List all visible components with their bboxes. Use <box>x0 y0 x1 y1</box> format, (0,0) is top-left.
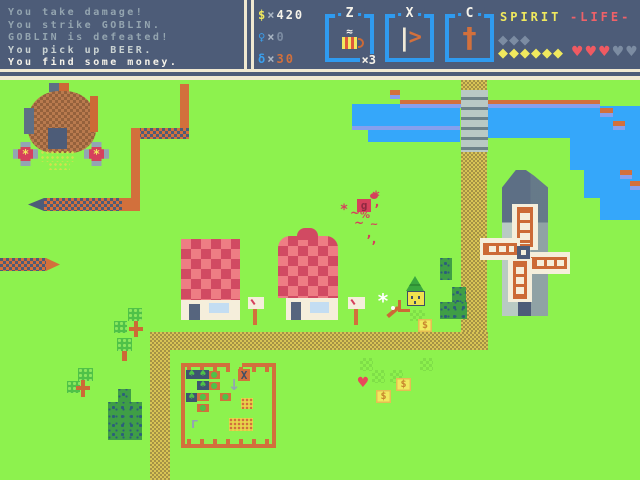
windmill-hub <box>517 246 530 259</box>
windmill-blade-left <box>480 238 520 260</box>
bush <box>440 302 467 319</box>
tree-trunk <box>129 321 143 337</box>
house2-window <box>310 302 329 313</box>
house2-roof-gable <box>297 228 318 240</box>
dirt-path-left-vertical <box>131 128 140 200</box>
signpost-post <box>354 309 358 325</box>
yellow-pip-icon: ◆ <box>498 47 508 60</box>
sand-road-west <box>170 332 488 350</box>
red-pip-icon: ♥ <box>598 45 611 59</box>
house1-roof <box>181 239 240 300</box>
farm-tile-tree: ♠ <box>197 381 208 390</box>
money-icon: $ <box>258 8 267 22</box>
signpost-board <box>348 297 365 309</box>
hut-skirt <box>40 150 76 162</box>
log-message: You find some money. <box>8 57 240 73</box>
beer-mug-icon <box>342 37 357 49</box>
dirt-path-southwest <box>0 258 46 271</box>
stat-value: 0 <box>276 30 285 44</box>
tree <box>128 308 142 321</box>
dot-icon <box>418 13 421 16</box>
river-east-mid <box>570 138 640 170</box>
sparkle: * <box>374 292 392 310</box>
money-pickup: $ <box>376 390 391 403</box>
slot-z-button[interactable]: Z≈×3 <box>325 14 374 62</box>
log-message: You pick up BEER. <box>8 45 240 58</box>
log-message: You take damage! <box>8 7 240 20</box>
dirt-path-southwest-tip <box>46 258 60 271</box>
farm-crop-grid: ♠♠●♠●♠●●● <box>186 369 231 414</box>
key-icon: ♀ <box>258 30 267 44</box>
dirt-path-west-tip <box>28 198 44 211</box>
farm-fence-gate-gap <box>230 363 242 367</box>
windmill-blade-right <box>528 252 570 274</box>
river-pool-west-lower <box>368 130 460 142</box>
bridge <box>461 90 488 152</box>
hay-patch <box>241 398 253 409</box>
hud-divider <box>244 0 254 80</box>
stat-value: 420 <box>276 8 304 22</box>
house1-window <box>209 303 229 313</box>
farm-tile-veg: ● <box>197 393 208 401</box>
yellow-pip-icon: ◆ <box>542 47 552 60</box>
river-bank <box>630 186 640 190</box>
signpost-board <box>248 297 264 309</box>
dim-pip-icon: ♥ <box>625 45 638 59</box>
yellow-pip-icon: ◆ <box>509 47 519 60</box>
hay-patch <box>229 418 253 431</box>
tree-trunk <box>122 351 127 361</box>
house2-roof <box>278 236 338 298</box>
corner-mark: Γ <box>190 418 199 430</box>
river-east-exit <box>600 198 640 220</box>
yellow-pip-icon: ◆ <box>520 47 530 60</box>
life-label: -LIFE- <box>570 10 631 24</box>
log-message: You strike GOBLIN. <box>8 20 240 33</box>
dim-pip-icon: ♥ <box>612 45 625 59</box>
hud-panel: You take damage!You strike GOBLIN.GOBLIN… <box>0 0 640 80</box>
farm-tile-veg: ● <box>209 371 220 379</box>
stat-value: 30 <box>276 52 294 66</box>
red-pip-icon: ♥ <box>571 45 584 59</box>
blood-splat: , <box>374 198 380 206</box>
windmill-blade-down <box>508 258 532 302</box>
grass-patch <box>372 370 385 383</box>
house2-door <box>291 302 301 320</box>
bush <box>440 258 452 280</box>
farm-tile-veg: ● <box>197 404 208 412</box>
bomb-icon: δ <box>258 52 267 66</box>
message-log: You take damage!You strike GOBLIN.GOBLIN… <box>8 7 240 73</box>
foam-icon: ≈ <box>346 28 353 35</box>
tree <box>114 321 127 333</box>
blood-splat: ~ <box>354 218 364 228</box>
gnome-npc-hat <box>406 276 424 291</box>
dot-icon <box>458 13 461 16</box>
dot-icon <box>338 13 341 16</box>
arrow-marker: ↓ <box>228 377 240 393</box>
hut-side-right <box>90 96 98 132</box>
river-bank <box>400 104 600 108</box>
dagger-icon: † <box>449 18 490 58</box>
river-bank <box>613 126 625 130</box>
dirt-path-upper-horizontal <box>138 128 189 139</box>
bush <box>108 402 142 440</box>
life-meter-row: ♥♥♥♥♥ <box>571 45 638 59</box>
hut-skirt <box>48 162 70 170</box>
red-pip-icon: ♥ <box>585 45 598 59</box>
beer-mug-icon: ≈ <box>329 18 370 58</box>
tree-trunk <box>76 380 90 397</box>
blood-splat: , <box>371 235 377 243</box>
grass-patch <box>420 358 433 371</box>
farm-tile-veg: ● <box>209 382 220 390</box>
river-bank <box>352 126 460 130</box>
hut-door <box>48 128 67 149</box>
money-pickup: $ <box>418 319 432 332</box>
dot-icon <box>358 13 361 16</box>
farm-tile-tree: ♠ <box>186 393 197 402</box>
log-message: GOBLIN is defeated! <box>8 32 240 45</box>
spirit-filled-row: ◆◆◆◆◆◆ <box>498 47 563 60</box>
stat-row-money: $×420 <box>258 9 304 21</box>
dirt-path-top-vertical <box>180 84 189 130</box>
dirt-path-west-end <box>122 198 140 211</box>
bush <box>452 287 466 302</box>
dot-icon <box>478 13 481 16</box>
stat-row-bomb: δ×30 <box>258 53 295 65</box>
signpost-post <box>253 309 257 325</box>
house1-door <box>189 304 200 320</box>
farm-tile-tree: ♠ <box>197 370 208 379</box>
tree <box>117 338 132 351</box>
slot-x-button[interactable]: X|> <box>385 14 434 62</box>
game-map-viewport[interactable]: **g**~%~~,,,*$$$♥♠♠●♠●♠●●●X↓Γ <box>0 80 640 480</box>
yellow-pip-icon: ◆ <box>531 47 541 60</box>
sparkle-dot <box>391 306 395 310</box>
bush <box>118 389 131 402</box>
blood-splat: * <box>338 204 350 216</box>
dirt-path-west <box>44 198 122 211</box>
hut-side-left <box>24 108 34 134</box>
money-pickup: $ <box>396 378 411 391</box>
slash-icon: > <box>409 27 422 49</box>
corner-marker <box>398 300 410 312</box>
slot-c-button[interactable]: C† <box>445 14 494 62</box>
sand-road-south-leg <box>150 332 170 480</box>
river-bank <box>620 175 632 179</box>
spirit-label: SPIRIT <box>500 10 561 24</box>
dot-icon <box>398 13 401 16</box>
heart-pickup: ♥ <box>356 376 370 390</box>
stat-row-key: ♀×0 <box>258 31 286 43</box>
farm-tile-veg: ● <box>220 393 231 401</box>
yellow-pip-icon: ◆ <box>553 47 563 60</box>
sword-slash-icon: |> <box>389 18 430 58</box>
river-bank <box>390 95 400 99</box>
farm-tile-tree: ♠ <box>186 370 197 379</box>
slot-quantity: ×3 <box>360 54 378 67</box>
dagger-icon: † <box>463 24 477 52</box>
river-bank <box>600 113 613 117</box>
